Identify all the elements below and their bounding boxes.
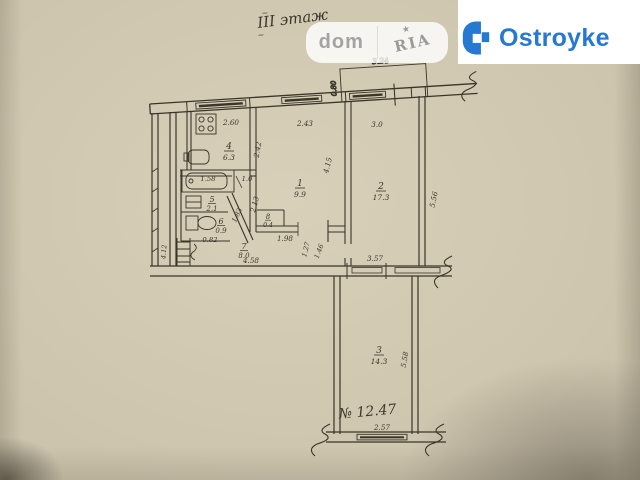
watermark-dom: dom xyxy=(306,22,377,63)
photo-of-floor-plan: ~ III этаж ~ xyxy=(0,0,640,480)
dim-room1-depth: 4.15 xyxy=(321,156,334,175)
room-label-room1: 1 9.9 xyxy=(294,179,306,199)
svg-text:1: 1 xyxy=(297,179,303,189)
brand-logo: Ostroyke xyxy=(462,20,610,56)
room-label-room2: 2 17.3 xyxy=(373,182,390,202)
svg-text:5: 5 xyxy=(209,195,214,204)
room2-right-wall xyxy=(419,96,425,266)
dim-bath-door: 1.0 xyxy=(242,175,253,183)
dim-room3-window: 2.57 xyxy=(373,423,390,432)
svg-text:2: 2 xyxy=(377,182,384,192)
window-room3 xyxy=(357,434,407,440)
room-label-room3: 3 14.3 xyxy=(371,346,388,366)
svg-text:6: 6 xyxy=(218,217,223,226)
dom-ria-watermark: dom ★ RIA xyxy=(306,22,448,63)
left-exterior-wall xyxy=(152,112,176,266)
wall-break-icon xyxy=(434,256,452,288)
washbasin-icon xyxy=(186,196,201,208)
svg-text:9.9: 9.9 xyxy=(294,190,306,199)
wall-break-icon xyxy=(311,424,330,456)
dim-hall-door-a: 1.27 xyxy=(300,241,312,258)
svg-text:14.3: 14.3 xyxy=(371,357,388,366)
svg-text:2.1: 2.1 xyxy=(205,205,217,213)
svg-text:0.9: 0.9 xyxy=(215,227,227,235)
dim-closet-width: 1.98 xyxy=(277,234,293,243)
dom-logo-text: dom xyxy=(319,31,364,54)
svg-text:8: 8 xyxy=(266,213,271,221)
dim-room2-width: 3.0 xyxy=(371,120,383,129)
room-label-closet: 8 0.4 xyxy=(263,213,273,229)
dimension-labels: 2.60 2.43 3.0 2.42 4.15 5.56 1.58 1.0 2.… xyxy=(200,118,439,432)
dim-room1-width: 2.43 xyxy=(296,119,313,128)
case-note: № 12.47 xyxy=(337,402,397,423)
toilet-icon xyxy=(186,216,216,230)
dim-stair-width: 4.12 xyxy=(159,244,168,260)
window-room1 xyxy=(282,95,322,103)
stove-icon xyxy=(196,114,216,134)
svg-text:3: 3 xyxy=(376,346,382,356)
ria-logo-text: RIA xyxy=(393,30,433,56)
room-label-wc: 6 0.9 xyxy=(215,217,227,235)
room2-left-wall xyxy=(345,101,351,266)
dim-room2-depth: 5.56 xyxy=(427,190,439,208)
window-kitchen xyxy=(196,100,246,109)
dim-room3-depth: 5.58 xyxy=(399,350,411,368)
wall-break-icon xyxy=(425,424,444,456)
room-label-kitchen: 4 6.3 xyxy=(223,142,235,162)
sink-icon xyxy=(184,150,209,164)
dim-hall-width: 4.58 xyxy=(242,256,259,265)
wall-break-icon xyxy=(460,71,478,101)
watermark-ria: ★ RIA xyxy=(378,22,449,63)
middle-wall xyxy=(150,256,452,288)
stairs xyxy=(177,238,196,266)
dim-wc-width: 0.82 xyxy=(202,236,217,244)
tilde-mark: ~ xyxy=(257,30,265,40)
dim-kitchen-width: 2.60 xyxy=(222,118,239,127)
dim-room3-top-width: 3.57 xyxy=(367,254,383,263)
room-labels: 4 6.3 1 9.9 2 17.3 3 14.3 5 xyxy=(205,142,389,366)
svg-text:4: 4 xyxy=(225,142,232,152)
dim-tub-length: 1.58 xyxy=(200,175,216,183)
svg-text:17.3: 17.3 xyxy=(373,193,390,202)
brand-name: Ostroyke xyxy=(499,24,610,53)
dim-balcony-depth: 0.80 xyxy=(330,80,339,97)
dim-kitchen-depth: 2.42 xyxy=(252,140,264,159)
svg-text:0.4: 0.4 xyxy=(263,222,273,229)
stair-break-icon xyxy=(191,244,196,260)
floor-plan-drawing: ~ III этаж ~ xyxy=(0,0,640,480)
dim-hall-door-b: 1.46 xyxy=(313,242,326,260)
room-label-bath: 5 2.1 xyxy=(205,195,217,213)
window-room2 xyxy=(349,91,385,99)
ostroyke-icon xyxy=(462,20,490,56)
svg-text:6.3: 6.3 xyxy=(223,153,235,162)
